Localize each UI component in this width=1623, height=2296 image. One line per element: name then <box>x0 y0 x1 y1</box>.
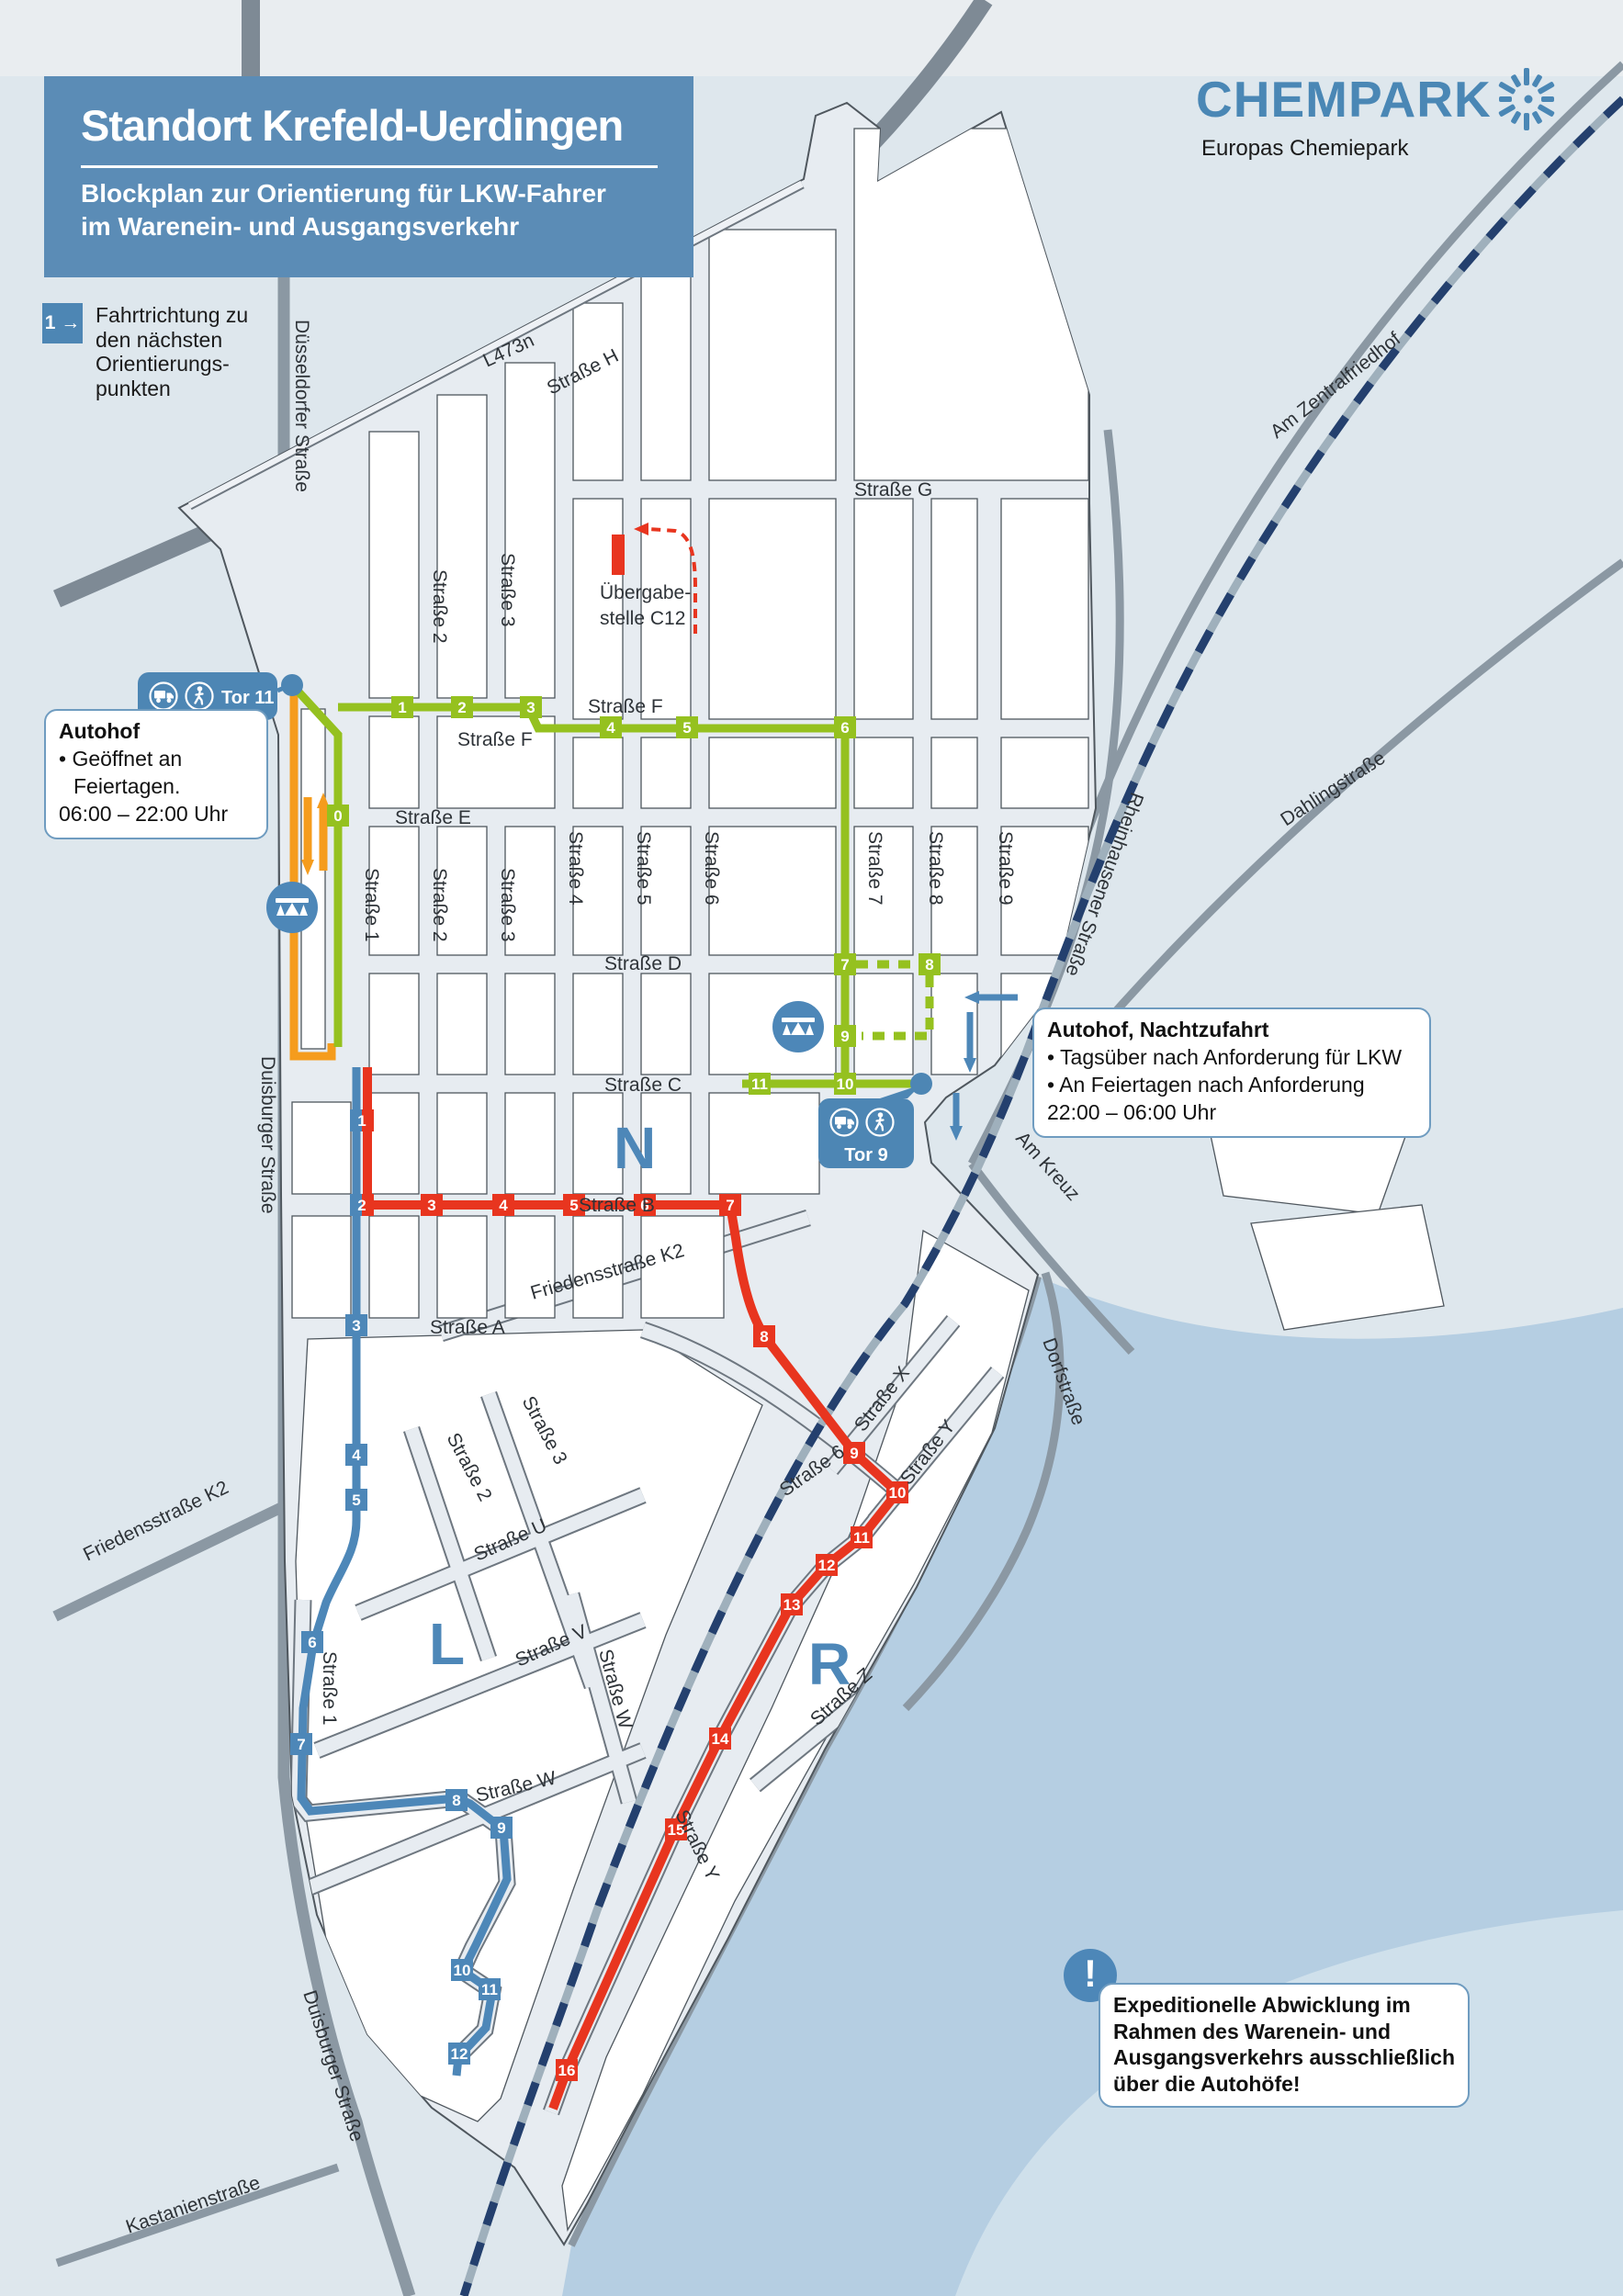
red-marker: 5 <box>569 1197 578 1214</box>
nachtzufahrt-title: Autohof, Nachtzufahrt <box>1047 1017 1416 1044</box>
street-label-s9: Straße 9 <box>995 831 1016 906</box>
green-marker: 5 <box>682 719 691 737</box>
title-divider <box>81 165 658 168</box>
shared-marker: 1 <box>357 1112 366 1130</box>
street-label-duisburger-up: Duisburger Straße <box>257 1056 278 1214</box>
uebergabestelle-label-line2: stelle C12 <box>600 608 685 629</box>
warning-box: Expeditionelle Abwicklung im Rahmen des … <box>1099 1983 1470 2108</box>
green-marker: 10 <box>837 1075 854 1093</box>
street-label-f-block: Straße F <box>457 729 533 750</box>
district-l: L <box>429 1611 465 1677</box>
blue-marker: 9 <box>497 1819 505 1837</box>
street-label-b: Straße B <box>579 1195 655 1216</box>
red-marker: 13 <box>783 1596 801 1614</box>
nachtzufahrt-bullet1: • Tagsüber nach Anforderung für LKW <box>1047 1044 1416 1072</box>
autohof-bullet: • Geöffnet an Feiertagen. <box>59 746 254 801</box>
red-marker: 16 <box>558 2062 576 2079</box>
street-label-f-corridor: Straße F <box>588 696 663 717</box>
brand-name: CHEMPARK <box>1196 70 1492 129</box>
chempark-starburst-icon <box>1492 64 1561 134</box>
autohof-info-box: Autohof • Geöffnet an Feiertagen. 06:00 … <box>44 709 268 839</box>
legend-text-line3: Orientierungs- <box>96 352 248 377</box>
blue-marker: 11 <box>481 1981 498 1998</box>
warning-line2: Rahmen des Warenein- und <box>1113 2019 1455 2045</box>
green-marker: 8 <box>925 956 933 974</box>
brand-tagline: Europas Chemiepark <box>1201 136 1591 162</box>
legend-text-line1: Fahrtrichtung zu <box>96 303 248 328</box>
red-marker: 14 <box>712 1730 729 1748</box>
blockplan-map: Übergabe- stelle C12 0 1 2 3 4 5 6 7 8 9… <box>0 0 1623 2296</box>
blue-marker: 8 <box>452 1792 460 1809</box>
street-label-s4: Straße 4 <box>565 831 586 906</box>
blue-marker: 12 <box>451 2045 468 2063</box>
subtitle-line2: im Warenein- und Ausgangsverkehr <box>81 210 693 243</box>
tor11-map-dot <box>281 674 303 696</box>
red-marker: 3 <box>427 1197 435 1214</box>
street-label-g: Straße G <box>854 479 932 501</box>
legend-text-line4: punkten <box>96 377 248 401</box>
brand-logo: CHEMPARK Europas Chemiepark <box>1196 64 1591 162</box>
blue-marker: 10 <box>454 1962 471 1979</box>
street-label-e: Straße E <box>395 807 471 828</box>
nachtzufahrt-info-box: Autohof, Nachtzufahrt • Tagsüber nach An… <box>1032 1007 1431 1138</box>
street-label-a: Straße A <box>430 1317 505 1338</box>
page-title: Standort Krefeld-Uerdingen <box>81 100 693 151</box>
green-marker: 2 <box>457 699 466 716</box>
warning-line3: Ausgangsverkehrs ausschließlich <box>1113 2044 1455 2071</box>
green-marker: 9 <box>840 1028 849 1045</box>
street-label-s8: Straße 8 <box>925 831 946 906</box>
autohof-hours: 06:00 – 22:00 Uhr <box>59 801 254 828</box>
autohof-title: Autohof <box>59 718 254 746</box>
blue-marker: 6 <box>308 1634 316 1651</box>
red-marker: 7 <box>726 1197 734 1214</box>
street-label-s2: Straße 2 <box>429 868 450 942</box>
district-n: N <box>614 1115 656 1181</box>
nachtzufahrt-hours: 22:00 – 06:00 Uhr <box>1047 1099 1416 1127</box>
green-marker: 6 <box>840 719 849 737</box>
warning-line4: über die Autohöfe! <box>1113 2071 1455 2098</box>
red-marker: 12 <box>818 1557 836 1574</box>
street-label-s5: Straße 5 <box>633 831 654 906</box>
blue-marker: 4 <box>352 1446 361 1464</box>
street-label-d: Straße D <box>604 953 682 974</box>
legend: 1 → Fahrtrichtung zu den nächsten Orient… <box>42 303 248 401</box>
shared-marker: 2 <box>357 1197 366 1214</box>
tor9-map-dot <box>910 1073 932 1095</box>
title-panel: Standort Krefeld-Uerdingen Blockplan zur… <box>44 76 693 277</box>
uebergabestelle-label-line1: Übergabe- <box>600 582 691 603</box>
legend-marker-sample: 1 → <box>42 303 83 343</box>
nachtzufahrt-bullet2: • An Feiertagen nach Anforderung <box>1047 1072 1416 1099</box>
street-label-s3: Straße 3 <box>497 868 518 942</box>
warning-line1: Expeditionelle Abwicklung im <box>1113 1992 1455 2019</box>
street-label-duesseldorfer: Düsseldorfer Straße <box>291 320 312 492</box>
blue-marker: 3 <box>352 1317 360 1334</box>
street-label-s3-top: Straße 3 <box>497 553 518 627</box>
red-marker: 9 <box>850 1445 858 1462</box>
red-marker: 4 <box>499 1197 508 1214</box>
street-label-s7: Straße 7 <box>864 831 885 906</box>
green-marker: 4 <box>606 719 615 737</box>
street-label-s6: Straße 6 <box>701 831 722 906</box>
street-label-s1-low: Straße 1 <box>319 1651 340 1726</box>
tor9-label: Tor 9 <box>844 1145 887 1165</box>
green-marker: 11 <box>751 1075 768 1093</box>
red-marker: 11 <box>853 1529 870 1547</box>
tor11-label: Tor 11 <box>221 688 274 708</box>
green-marker: 7 <box>840 956 849 974</box>
street-label-s2-top: Straße 2 <box>429 569 450 644</box>
blue-marker: 5 <box>352 1491 360 1509</box>
green-marker: 3 <box>526 699 535 716</box>
blue-marker: 7 <box>297 1736 305 1753</box>
red-marker: 10 <box>889 1484 907 1502</box>
subtitle-line1: Blockplan zur Orientierung für LKW-Fahre… <box>81 177 693 210</box>
street-label-c: Straße C <box>604 1075 682 1096</box>
red-marker: 8 <box>760 1328 768 1345</box>
street-label-s1: Straße 1 <box>361 868 382 942</box>
legend-text-line2: den nächsten <box>96 328 248 353</box>
green-marker: 0 <box>333 807 342 825</box>
green-marker: 1 <box>398 699 406 716</box>
